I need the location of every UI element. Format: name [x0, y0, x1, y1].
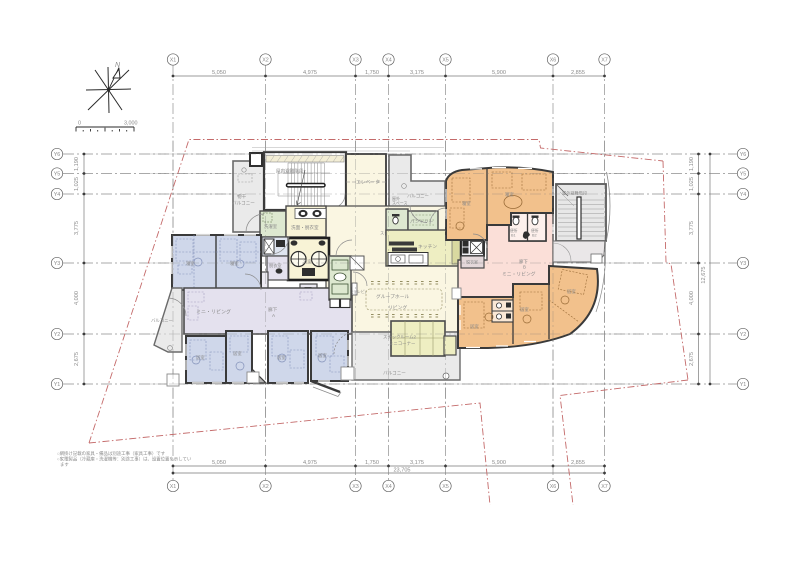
svg-text:バルコニー: バルコニー [232, 201, 255, 206]
svg-text:2,675: 2,675 [689, 352, 695, 366]
svg-text:5,050: 5,050 [212, 70, 226, 76]
svg-text:B1: B1 [511, 234, 516, 238]
svg-text:X5: X5 [442, 484, 449, 490]
svg-text:バルコニー: バルコニー [383, 371, 406, 376]
svg-text:X6: X6 [550, 58, 557, 64]
svg-text:○家電製品（冷蔵庫・洗濯機等：別途工事）は、設置位置を示して: ○家電製品（冷蔵庫・洗濯機等：別途工事）は、設置位置を示してい [57, 456, 192, 463]
svg-text:キッチン: キッチン [418, 244, 437, 250]
svg-text:廊下: 廊下 [268, 306, 278, 313]
svg-text:X1: X1 [170, 58, 177, 64]
svg-text:X6: X6 [550, 484, 557, 490]
svg-text:2,675: 2,675 [74, 352, 80, 366]
svg-text:浴室: 浴室 [303, 258, 312, 265]
svg-text:ミニ・リビング: ミニ・リビング [196, 309, 231, 316]
svg-text:寝室: 寝室 [462, 200, 471, 206]
svg-text:Y5: Y5 [740, 172, 747, 178]
svg-text:1,190: 1,190 [74, 157, 80, 171]
svg-text:X4: X4 [385, 58, 392, 64]
svg-text:1,025: 1,025 [689, 177, 695, 191]
svg-text:便所: 便所 [531, 228, 539, 233]
svg-text:リビング: リビング [388, 304, 407, 311]
svg-text:1,190: 1,190 [689, 157, 695, 171]
svg-text:Y6: Y6 [54, 152, 61, 158]
svg-text:1,025: 1,025 [74, 177, 80, 191]
svg-text:3,175: 3,175 [410, 460, 424, 466]
svg-text:4,975: 4,975 [303, 460, 317, 466]
svg-text:3,775: 3,775 [689, 221, 695, 235]
svg-text:4,000: 4,000 [74, 291, 80, 305]
svg-text:Y3: Y3 [740, 261, 747, 267]
svg-text:3,775: 3,775 [74, 221, 80, 235]
svg-text:Y1: Y1 [54, 382, 61, 388]
svg-text:X2: X2 [262, 484, 269, 490]
svg-text:3,175: 3,175 [410, 70, 424, 76]
svg-text:Y2: Y2 [740, 332, 747, 338]
svg-text:4,975: 4,975 [303, 70, 317, 76]
svg-text:洗面・脱衣室: 洗面・脱衣室 [291, 224, 319, 231]
svg-text:B2: B2 [532, 234, 537, 238]
svg-text:グループホール: グループホール [376, 293, 409, 300]
svg-text:Y3: Y3 [54, 261, 61, 267]
svg-text:X3: X3 [352, 58, 359, 64]
svg-text:居室: 居室 [470, 323, 479, 330]
svg-text:5,900: 5,900 [492, 70, 506, 76]
svg-text:X3: X3 [352, 484, 359, 490]
svg-text:居室: 居室 [233, 350, 242, 357]
svg-text:エレベータ: エレベータ [356, 179, 380, 186]
svg-text:ます: ます [60, 461, 69, 468]
svg-text:洗濯室: 洗濯室 [264, 223, 278, 230]
svg-text:X2: X2 [262, 58, 269, 64]
svg-text:Y5: Y5 [54, 172, 61, 178]
svg-text:5,050: 5,050 [212, 460, 226, 466]
svg-text:1,750: 1,750 [365, 460, 379, 466]
svg-text:(テレビ): (テレビ) [352, 289, 367, 294]
svg-text:脱衣室: 脱衣室 [466, 259, 478, 265]
svg-text:Y2: Y2 [54, 332, 61, 338]
svg-text:便所: 便所 [510, 228, 518, 233]
svg-text:4,000: 4,000 [689, 291, 695, 305]
svg-text:Y4: Y4 [54, 192, 61, 198]
svg-text:Y4: Y4 [740, 192, 747, 198]
svg-text:12,675: 12,675 [701, 266, 707, 283]
svg-text:X1: X1 [170, 484, 177, 490]
svg-text:バルコニー: バルコニー [151, 318, 173, 323]
svg-text:23,705: 23,705 [393, 468, 410, 474]
svg-text:居室: 居室 [567, 288, 576, 295]
svg-text:スペース: スペース [392, 200, 408, 206]
svg-text:居室: 居室 [277, 354, 286, 361]
svg-text:0: 0 [78, 121, 81, 127]
svg-text:屋外避難階段: 屋外避難階段 [562, 190, 588, 197]
svg-text:2,855: 2,855 [571, 460, 585, 466]
svg-text:1,750: 1,750 [365, 70, 379, 76]
svg-text:X5: X5 [442, 58, 449, 64]
svg-text:居室: 居室 [318, 352, 327, 359]
svg-text:B: B [523, 265, 526, 270]
svg-text:Y1: Y1 [740, 382, 747, 388]
svg-text:X4: X4 [385, 484, 392, 490]
svg-text:居室: 居室 [196, 354, 205, 361]
svg-text:2,855: 2,855 [571, 70, 585, 76]
svg-text:3,000: 3,000 [124, 121, 138, 127]
svg-text:ミニ・リビング: ミニ・リビング [502, 271, 536, 278]
svg-text:居室: 居室 [520, 306, 529, 313]
svg-text:Y6: Y6 [740, 152, 747, 158]
svg-text:5,900: 5,900 [492, 460, 506, 466]
svg-text:X7: X7 [601, 58, 608, 64]
svg-text:X7: X7 [601, 484, 608, 490]
